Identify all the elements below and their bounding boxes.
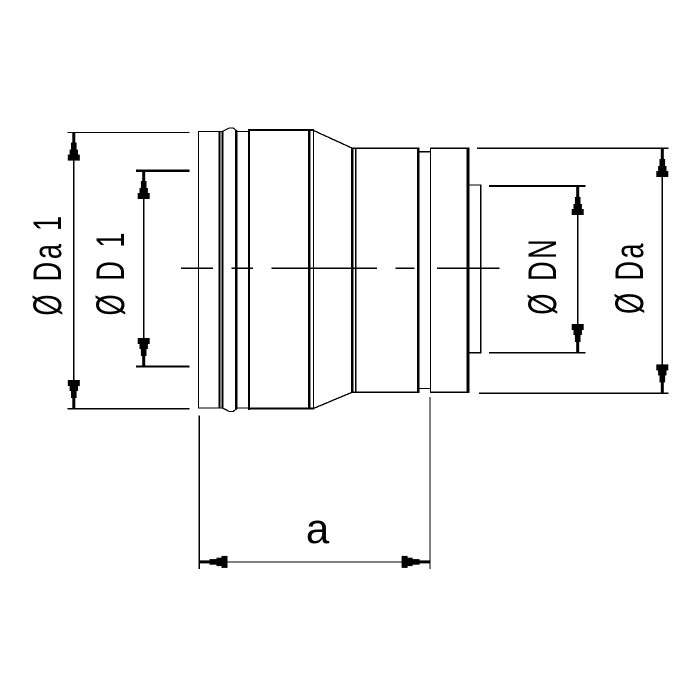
- svg-text:Ø D 1: Ø D 1: [89, 230, 133, 316]
- svg-text:a: a: [306, 505, 330, 552]
- svg-text:Ø Da 1: Ø Da 1: [26, 213, 70, 315]
- svg-text:Ø Da: Ø Da: [608, 241, 652, 314]
- svg-text:Ø DN: Ø DN: [521, 237, 565, 315]
